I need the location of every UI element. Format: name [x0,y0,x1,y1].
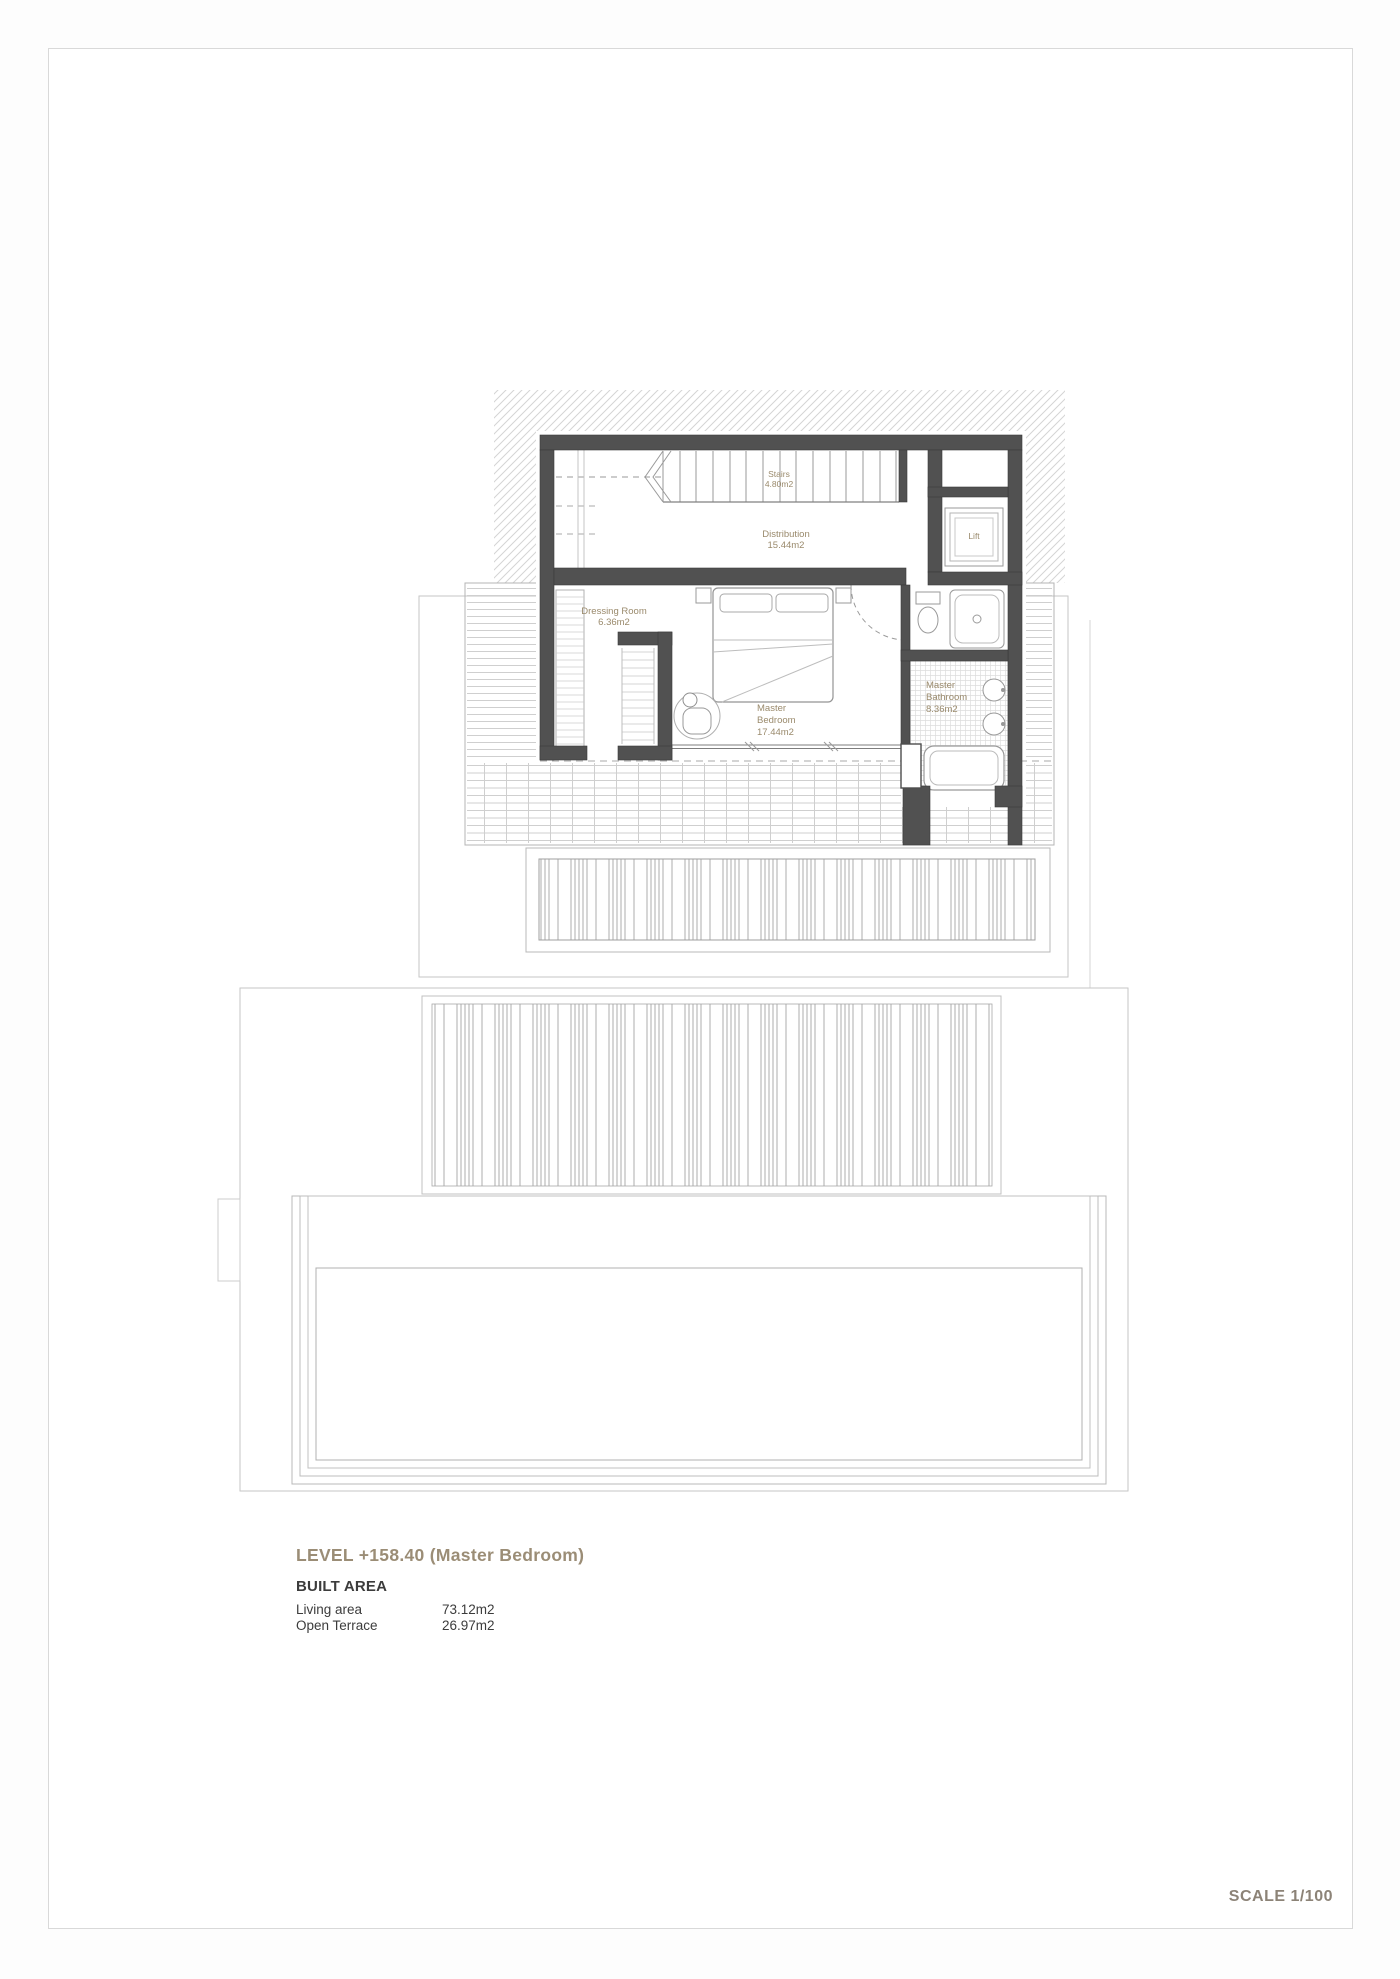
room-label-dressing-room: Dressing Room 6.36m2 [581,606,646,628]
room-label-lift: Lift [968,531,979,542]
room-label-stairs: Stairs 4.80m2 [765,470,793,489]
room-label-distribution: Distribution 15.44m2 [762,529,810,551]
built-area-heading: BUILT AREA [296,1578,616,1595]
floor-plan-drawing [0,0,1400,1979]
area-row-label: Living area [296,1602,362,1617]
scale-label: SCALE 1/100 [1229,1888,1333,1906]
area-row-living: Living area 73.12m2 [296,1602,616,1618]
drawing-sheet: { "page": { "scale_label": "SCALE 1/100"… [0,0,1400,1979]
area-row-value: 73.12m2 [442,1602,495,1618]
room-label-master-bathroom: Master Bathroom 8.36m2 [926,680,967,716]
room-label-master-bedroom: Master Bedroom 17.44m2 [757,703,796,739]
area-row-terrace: Open Terrace 26.97m2 [296,1618,616,1634]
level-title: LEVEL +158.40 (Master Bedroom) [296,1545,616,1566]
area-row-label: Open Terrace [296,1618,378,1633]
area-row-value: 26.97m2 [442,1618,495,1634]
footer-block: LEVEL +158.40 (Master Bedroom) BUILT ARE… [296,1545,616,1634]
